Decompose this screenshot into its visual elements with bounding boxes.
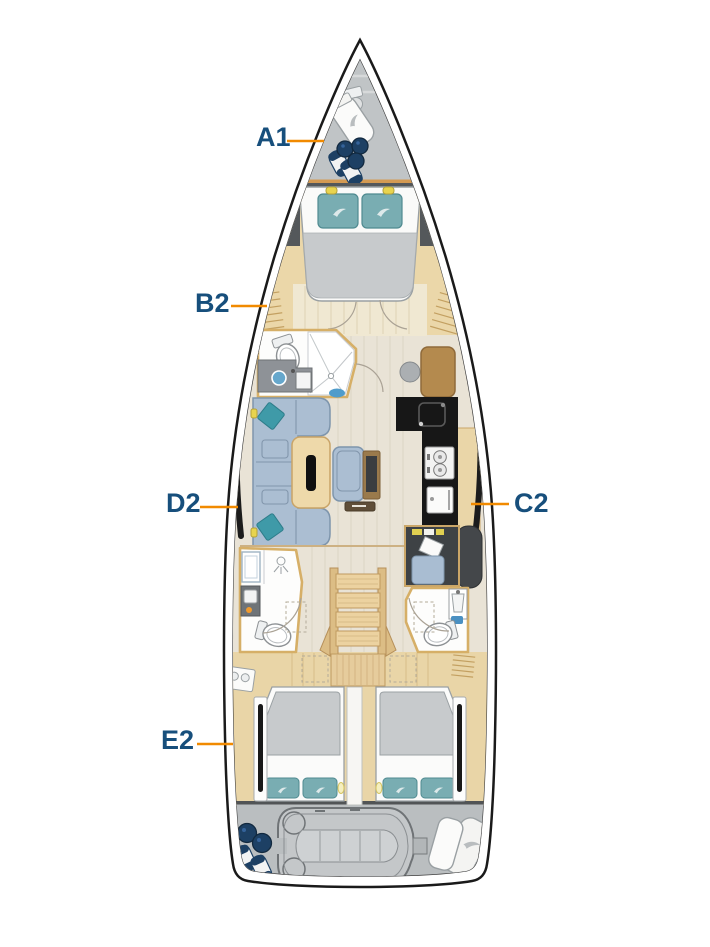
label-e2: E2 bbox=[161, 725, 194, 755]
stool bbox=[400, 362, 420, 382]
stove bbox=[425, 447, 454, 479]
reading-light bbox=[326, 187, 337, 194]
sink-basin bbox=[272, 371, 286, 385]
aft-head-starboard bbox=[406, 588, 468, 652]
label-c2: C2 bbox=[514, 488, 549, 518]
label-a1: A1 bbox=[256, 122, 291, 152]
pillow bbox=[265, 778, 299, 798]
armchair bbox=[333, 447, 364, 501]
side-sink bbox=[296, 372, 311, 389]
forward-mattress bbox=[303, 233, 417, 298]
bath-mat bbox=[329, 389, 345, 398]
aft-berth-port bbox=[258, 687, 344, 801]
hull-window-stbd-fore bbox=[450, 237, 455, 266]
label-d2: D2 bbox=[166, 488, 201, 518]
yacht-deck-plan: A1 B2 D2 C2 E2 bbox=[0, 0, 710, 947]
hull-window-port-aft bbox=[258, 704, 263, 792]
hull-window-stbd-aft bbox=[457, 704, 462, 792]
reading-light bbox=[251, 409, 257, 418]
outboard-mount bbox=[413, 838, 427, 854]
reading-light bbox=[251, 528, 257, 537]
shower-drain bbox=[328, 373, 333, 378]
nav-station bbox=[405, 526, 482, 588]
tv-cabinet bbox=[363, 451, 380, 499]
dinghy-floor bbox=[296, 830, 398, 862]
aft-berth-starboard bbox=[376, 687, 462, 801]
cabin-divider bbox=[347, 687, 362, 805]
table-inlay bbox=[306, 455, 316, 491]
label-b2: B2 bbox=[195, 288, 230, 318]
wardrobe-starboard bbox=[453, 697, 466, 801]
reading-light bbox=[338, 783, 344, 794]
mattress bbox=[263, 692, 340, 755]
dinghy bbox=[277, 808, 427, 884]
stair-landing bbox=[331, 654, 385, 686]
wardrobe-port bbox=[254, 697, 267, 801]
reading-light bbox=[383, 187, 394, 194]
pillow bbox=[303, 778, 337, 798]
nav-seat bbox=[412, 556, 444, 584]
reading-light bbox=[376, 783, 382, 794]
sink-basin bbox=[244, 590, 257, 603]
mattress bbox=[380, 692, 457, 755]
fridge bbox=[427, 487, 453, 513]
aft-head-port bbox=[240, 548, 302, 652]
hull-window-port-fore bbox=[265, 237, 270, 266]
pillow bbox=[383, 778, 417, 798]
side-shelf bbox=[345, 502, 375, 511]
companionway-stairs bbox=[320, 568, 396, 686]
forward-berth bbox=[300, 187, 420, 301]
pillow bbox=[421, 778, 455, 798]
vanity-table bbox=[421, 347, 455, 397]
